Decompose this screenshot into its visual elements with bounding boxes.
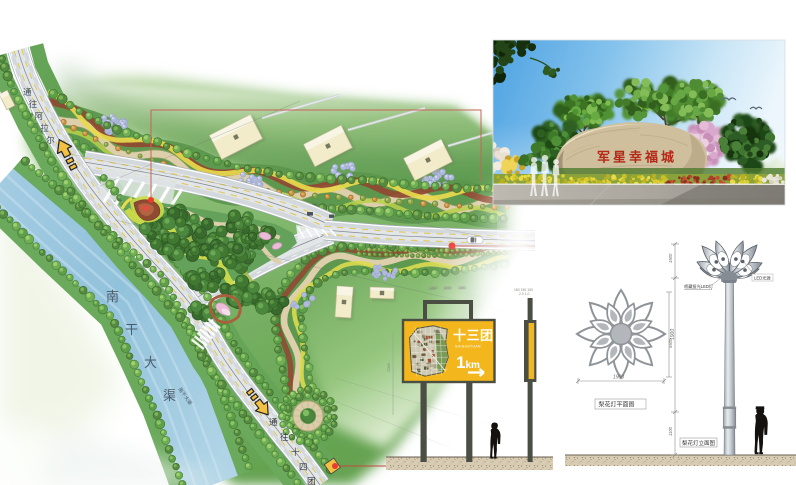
svg-text:梨花灯平面图: 梨花灯平面图 xyxy=(599,401,635,409)
svg-text:十三团: 十三团 xyxy=(453,328,494,343)
svg-text:1100: 1100 xyxy=(668,426,673,436)
svg-text:1500: 1500 xyxy=(668,253,673,263)
svg-text:1900: 1900 xyxy=(613,375,624,381)
svg-text:SHISANTUAN: SHISANTUAN xyxy=(455,345,481,349)
svg-text:1500: 1500 xyxy=(430,286,438,290)
svg-text:军星幸福城: 军星幸福城 xyxy=(597,150,677,165)
svg-text:5500: 5500 xyxy=(668,338,673,348)
svg-text:3000: 3000 xyxy=(444,286,452,290)
svg-text:LED光源: LED光源 xyxy=(754,274,771,281)
svg-text:喷藏投光LED灯: 喷藏投光LED灯 xyxy=(684,283,714,290)
svg-text:梨花灯立面图: 梨花灯立面图 xyxy=(682,439,716,447)
svg-text:1500: 1500 xyxy=(458,286,466,290)
svg-text:2.0 1.0: 2.0 1.0 xyxy=(519,292,529,296)
